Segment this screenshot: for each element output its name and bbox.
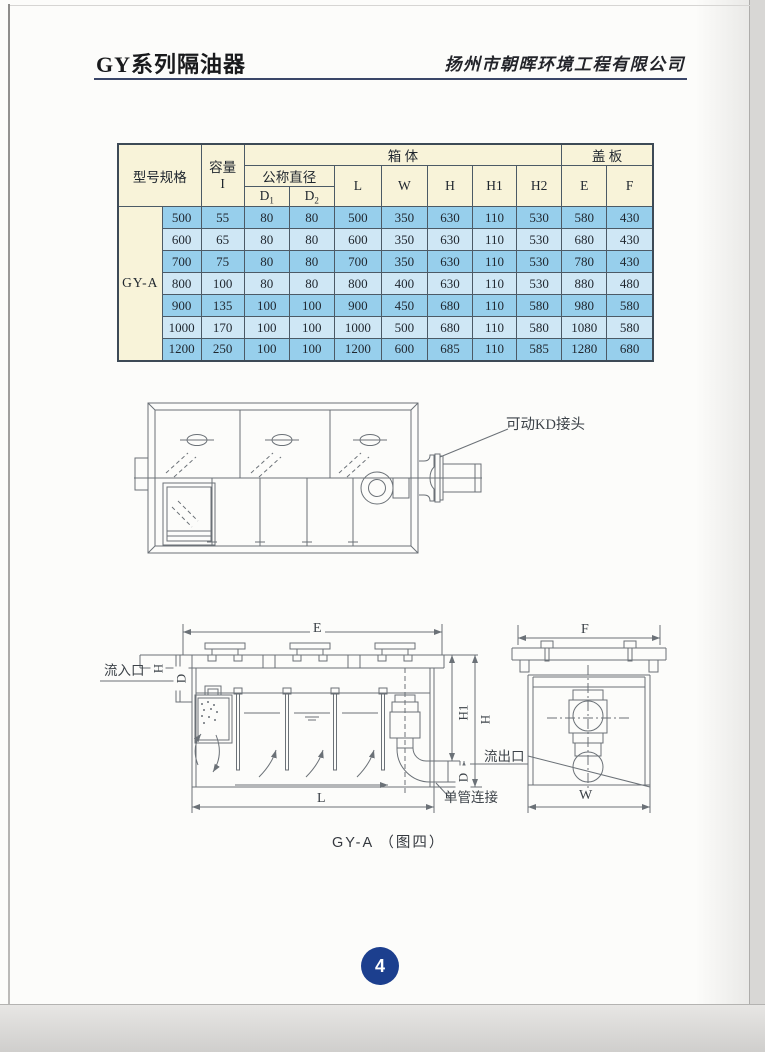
spec-cell: 100: [244, 295, 289, 317]
spec-cell: 700: [162, 251, 201, 273]
spec-cell: 780: [562, 251, 607, 273]
spec-cell: 580: [517, 295, 562, 317]
table-row: 800 100 80 80 800 400 630 110 530 880 48…: [118, 273, 653, 295]
spec-cell: 500: [381, 317, 427, 339]
col-header-capacity: 容量 I: [201, 144, 244, 207]
outlet-label: 流出口: [484, 745, 525, 765]
header-row-1: 型号规格 容量 I 箱 体 盖 板: [118, 144, 653, 166]
page-title: GY系列隔油器: [96, 47, 246, 79]
spec-cell: 100: [289, 317, 334, 339]
spec-cell: 80: [244, 207, 289, 229]
spec-cell: 530: [517, 273, 562, 295]
inlet-label: 流入口: [104, 659, 145, 679]
spec-cell: 630: [427, 273, 472, 295]
col-header-D2: D2: [289, 187, 334, 207]
spec-cell: 110: [473, 339, 517, 361]
spec-cell: 630: [427, 207, 472, 229]
spec-cell: 100: [244, 339, 289, 361]
table-row: 1000 170 100 100 1000 500 680 110 580 10…: [118, 317, 653, 339]
spec-cell: 580: [607, 295, 653, 317]
col-header-H: H: [427, 166, 472, 207]
table-row: 700 75 80 80 700 350 630 110 530 780 430: [118, 251, 653, 273]
spec-cell: 530: [517, 207, 562, 229]
spec-cell: 80: [244, 229, 289, 251]
spec-cell: 980: [562, 295, 607, 317]
spec-cell: 685: [427, 339, 472, 361]
spec-cell: 80: [244, 273, 289, 295]
spec-cell: 680: [562, 229, 607, 251]
figure-caption: GY-A （图四）: [332, 831, 445, 852]
dim-label-H1: H1: [456, 701, 471, 725]
dim-label-D-left: D: [174, 667, 189, 691]
scan-top-line: [10, 5, 750, 6]
table-row: 1200 250 100 100 1200 600 685 110 585 12…: [118, 339, 653, 361]
spec-cell: 430: [607, 207, 653, 229]
spec-cell: 500: [334, 207, 381, 229]
spec-cell: 80: [244, 251, 289, 273]
spec-cell: 65: [201, 229, 244, 251]
scan-left-line: [8, 4, 10, 1004]
table-row: 900 135 100 100 900 450 680 110 580 980 …: [118, 295, 653, 317]
spec-cell: 80: [289, 251, 334, 273]
spec-cell: 1000: [162, 317, 201, 339]
spec-cell: 110: [473, 251, 517, 273]
spec-cell: 900: [162, 295, 201, 317]
spec-cell: 450: [381, 295, 427, 317]
spec-cell: 1280: [562, 339, 607, 361]
spec-cell: 1200: [334, 339, 381, 361]
spec-cell: 1200: [162, 339, 201, 361]
kd-joint-label: 可动KD接头: [506, 413, 585, 434]
model-cell: GY-A: [118, 207, 162, 361]
spec-cell: 480: [607, 273, 653, 295]
scan-right-shade: [695, 0, 750, 1052]
spec-cell: 100: [289, 295, 334, 317]
spec-cell: 530: [517, 229, 562, 251]
spec-cell: 800: [162, 273, 201, 295]
company-name: 扬州市朝晖环境工程有限公司: [445, 50, 686, 75]
spec-cell: 800: [334, 273, 381, 295]
dim-label-H-right: H: [478, 708, 493, 732]
spec-cell: 630: [427, 229, 472, 251]
col-header-model: 型号规格: [118, 144, 201, 207]
spec-cell: 900: [334, 295, 381, 317]
spec-cell: 135: [201, 295, 244, 317]
spec-cell: 80: [289, 229, 334, 251]
spec-cell: 80: [289, 207, 334, 229]
dim-label-E: E: [310, 621, 325, 636]
page-number-badge: 4: [361, 947, 399, 985]
spec-cell: 100: [289, 339, 334, 361]
col-header-box-body: 箱 体: [244, 144, 562, 166]
spec-cell: 110: [473, 295, 517, 317]
col-header-L: L: [334, 166, 381, 207]
single-pipe-label: 单管连接: [444, 786, 498, 806]
spec-cell: 600: [334, 229, 381, 251]
spec-cell: 680: [427, 295, 472, 317]
capacity-line1: 容量: [202, 160, 244, 176]
spec-cell: 110: [473, 273, 517, 295]
col-header-F: F: [607, 166, 653, 207]
capacity-line2: I: [202, 176, 244, 192]
table-row: 600 65 80 80 600 350 630 110 530 680 430: [118, 229, 653, 251]
spec-cell: 880: [562, 273, 607, 295]
col-header-H1: H1: [473, 166, 517, 207]
spec-cell: 110: [473, 229, 517, 251]
spec-cell: 430: [607, 251, 653, 273]
dim-label-H-left: H: [151, 657, 166, 681]
spec-cell: 680: [607, 339, 653, 361]
spec-cell: 1000: [334, 317, 381, 339]
spec-cell: 1080: [562, 317, 607, 339]
scan-bottom-edge: [0, 1004, 765, 1052]
spec-table-wrap: 型号规格 容量 I 箱 体 盖 板 公称直径 L W H H1 H2 E F D…: [117, 143, 654, 362]
spec-cell: 600: [162, 229, 201, 251]
spec-cell: 600: [381, 339, 427, 361]
spec-cell: 585: [517, 339, 562, 361]
col-header-cover-plate: 盖 板: [562, 144, 653, 166]
spec-cell: 430: [607, 229, 653, 251]
spec-cell: 170: [201, 317, 244, 339]
col-header-E: E: [562, 166, 607, 207]
spec-cell: 630: [427, 251, 472, 273]
spec-cell: 580: [607, 317, 653, 339]
spec-cell: 80: [289, 273, 334, 295]
spec-cell: 110: [473, 207, 517, 229]
spec-cell: 55: [201, 207, 244, 229]
table-row: GY-A 500 55 80 80 500 350 630 110 530 58…: [118, 207, 653, 229]
spec-cell: 350: [381, 207, 427, 229]
spec-cell: 250: [201, 339, 244, 361]
dim-label-L: L: [314, 791, 329, 806]
col-header-W: W: [381, 166, 427, 207]
dim-label-F: F: [578, 622, 592, 637]
spec-cell: 700: [334, 251, 381, 273]
spec-cell: 75: [201, 251, 244, 273]
spec-cell: 580: [517, 317, 562, 339]
col-header-H2: H2: [517, 166, 562, 207]
spec-cell: 680: [427, 317, 472, 339]
spec-cell: 500: [162, 207, 201, 229]
col-header-nominal-diameter: 公称直径: [244, 166, 334, 187]
spec-cell: 400: [381, 273, 427, 295]
dim-label-W: W: [576, 788, 595, 803]
spec-table: 型号规格 容量 I 箱 体 盖 板 公称直径 L W H H1 H2 E F D…: [117, 143, 654, 362]
scan-right-edge: [749, 0, 765, 1052]
spec-cell: 350: [381, 229, 427, 251]
spec-cell: 350: [381, 251, 427, 273]
spec-cell: 530: [517, 251, 562, 273]
spec-cell: 110: [473, 317, 517, 339]
col-header-D1: D1: [244, 187, 289, 207]
scanned-page: GY系列隔油器 扬州市朝晖环境工程有限公司 型号规格 容量 I 箱 体 盖 板 …: [0, 0, 765, 1052]
spec-cell: 580: [562, 207, 607, 229]
spec-cell: 100: [201, 273, 244, 295]
header-rule: [94, 78, 687, 80]
spec-cell: 100: [244, 317, 289, 339]
